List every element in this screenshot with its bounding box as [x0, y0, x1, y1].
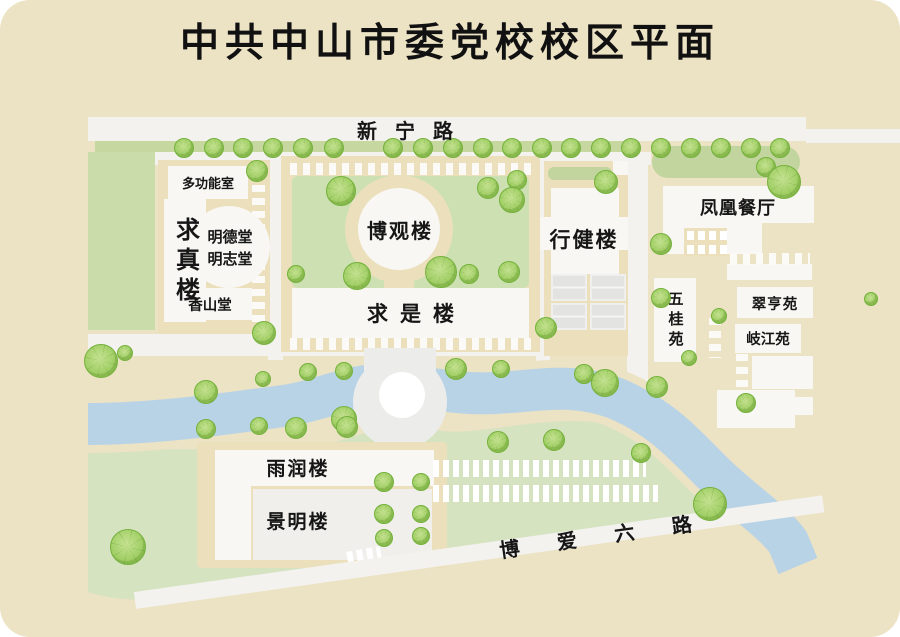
- tree-icon: [233, 138, 253, 158]
- tree-icon: [594, 170, 618, 194]
- tree-icon: [293, 138, 313, 158]
- tree-icon: [204, 138, 224, 158]
- tree-icon: [246, 160, 268, 182]
- xinning-road-label: 新宁路: [320, 116, 490, 142]
- xingjian-label: 行健楼: [542, 226, 626, 252]
- tree-icon: [326, 176, 356, 206]
- tree-icon: [650, 233, 672, 255]
- tree-icon: [681, 138, 701, 158]
- tree-icon: [336, 416, 358, 438]
- tree-icon: [532, 138, 552, 158]
- tree-icon: [693, 487, 727, 521]
- parking-row-1: [433, 460, 646, 477]
- tree-icon: [374, 472, 394, 492]
- tree-icon: [498, 261, 520, 283]
- qijiang-label: 岐江苑: [735, 326, 801, 350]
- tree-icon: [196, 419, 216, 439]
- tree-icon: [459, 264, 479, 284]
- tree-icon: [174, 138, 194, 158]
- tree-icon: [84, 344, 118, 378]
- jingming-label: 景明楼: [228, 506, 368, 534]
- tree-icon: [621, 138, 641, 158]
- tree-icon: [110, 529, 146, 565]
- tree-icon: [263, 138, 283, 158]
- tree-icon: [770, 138, 790, 158]
- tree-icon: [711, 308, 727, 324]
- tree-icon: [492, 360, 510, 378]
- tree-icon: [412, 505, 430, 523]
- tree-icon: [561, 138, 581, 158]
- yurun-label: 雨润楼: [228, 453, 368, 481]
- tree-icon: [335, 362, 353, 380]
- tree-icon: [255, 371, 271, 387]
- tree-icon: [194, 380, 218, 404]
- tree-icon: [631, 443, 651, 463]
- tree-icon: [487, 431, 509, 453]
- duogongneng-label: 多功能室: [168, 166, 248, 199]
- tree-icon: [412, 527, 430, 545]
- wugui-label: 五桂苑: [655, 286, 695, 356]
- tree-icon: [646, 376, 668, 398]
- page-title: 中共中山市委党校校区平面: [0, 14, 900, 66]
- parking-row-2: [433, 485, 658, 502]
- tree-icon: [250, 417, 268, 435]
- tree-icon: [252, 321, 276, 345]
- tree-icon: [651, 138, 671, 158]
- tree-icon: [425, 256, 457, 288]
- tree-icon: [375, 529, 393, 547]
- tree-icon: [499, 187, 525, 213]
- tree-icon: [864, 292, 878, 306]
- tree-icon: [477, 177, 499, 199]
- tree-icon: [117, 345, 133, 361]
- tree-icon: [502, 138, 522, 158]
- tree-icon: [412, 473, 430, 491]
- plaza-fountain: [379, 372, 425, 418]
- boguan-label: 博观楼: [358, 216, 442, 242]
- tree-icon: [591, 138, 611, 158]
- mingde-label: 明德堂: [190, 226, 270, 247]
- qiushi-label: 求是楼: [292, 300, 529, 326]
- tree-icon: [741, 138, 761, 158]
- xiangshan-label: 香山堂: [168, 290, 252, 318]
- tree-icon: [711, 138, 731, 158]
- mingzhi-label: 明志堂: [190, 248, 270, 269]
- tree-icon: [299, 363, 317, 381]
- tree-icon: [285, 417, 307, 439]
- tree-icon: [543, 429, 565, 451]
- tree-icon: [343, 262, 371, 290]
- tree-icon: [736, 393, 756, 413]
- tree-icon: [287, 265, 305, 283]
- tree-icon: [374, 504, 394, 524]
- fenghuang-label: 凤凰餐厅: [666, 194, 810, 220]
- tree-icon: [445, 358, 467, 380]
- cuiheng-label: 翠亨苑: [737, 290, 813, 316]
- tree-icon: [535, 317, 557, 339]
- campus-map: 中共中山市委党校校区平面 新宁路 多功能室 求真楼 明德堂 明志堂 香山堂 博观…: [0, 0, 900, 637]
- tree-icon: [591, 369, 619, 397]
